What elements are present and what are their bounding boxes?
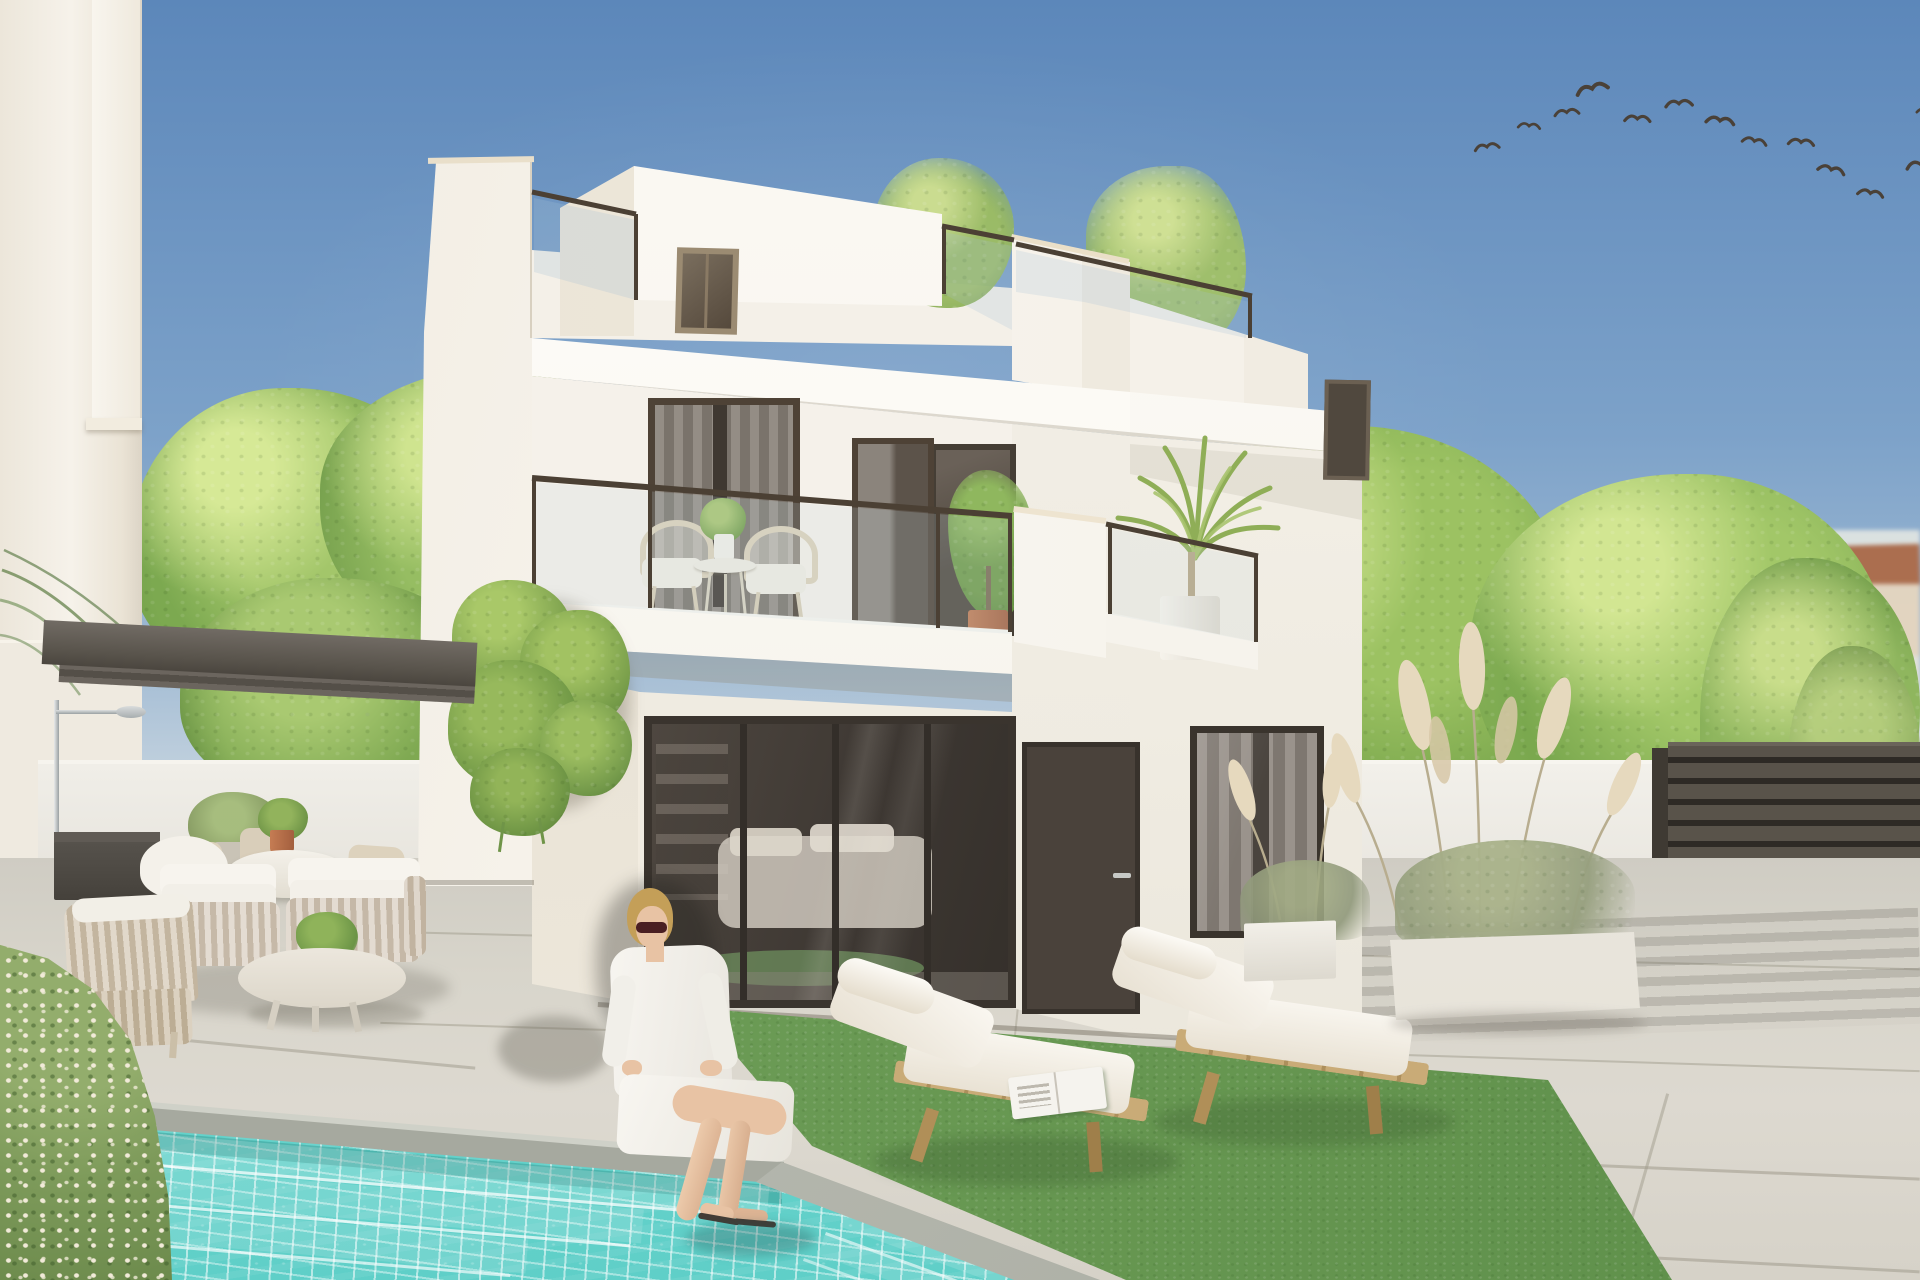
table-leg	[312, 1006, 319, 1032]
coffee-table	[238, 948, 406, 1008]
magazine-fold	[1053, 1072, 1060, 1114]
armchair-arm	[404, 876, 426, 956]
woman-sunglasses	[636, 922, 667, 933]
shower-head	[116, 706, 146, 718]
woman-neck	[646, 942, 664, 962]
planter-shadow	[1390, 1012, 1646, 1034]
scene	[0, 0, 1920, 1280]
magazine-lines	[1017, 1083, 1051, 1109]
woman-paving-shadow	[498, 1016, 610, 1082]
woman-water-shadow	[686, 1222, 816, 1256]
woman-hand	[700, 1060, 722, 1076]
small-planter	[1244, 920, 1336, 981]
ivy-cluster	[470, 748, 570, 836]
